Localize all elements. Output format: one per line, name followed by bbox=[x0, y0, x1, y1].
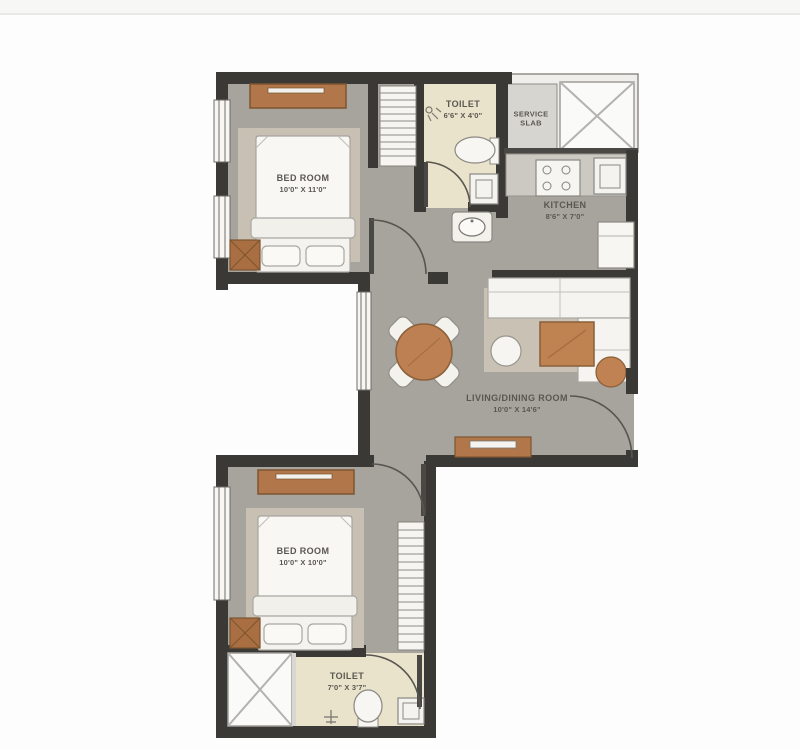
floor-plan-page: BED ROOM 10'0" X 11'0" TOILET 6'6" X 4'0… bbox=[0, 0, 800, 749]
floor-plan-image: BED ROOM 10'0" X 11'0" TOILET 6'6" X 4'0… bbox=[0, 0, 800, 749]
double-bed-icon bbox=[251, 136, 355, 272]
coffee-table-icon bbox=[540, 322, 594, 366]
duct-shaft-icon bbox=[228, 653, 292, 726]
bedside-table-icon bbox=[230, 618, 260, 648]
wc-toilet-icon bbox=[455, 137, 499, 164]
room-name: TOILET bbox=[444, 99, 483, 110]
room-dims: 10'0" X 14'6" bbox=[466, 405, 568, 414]
fridge-icon bbox=[598, 222, 634, 268]
room-name: BED ROOM bbox=[277, 546, 330, 557]
room-name: BED ROOM bbox=[277, 173, 330, 184]
room-dims: 10'0" X 10'0" bbox=[277, 558, 330, 567]
room-name: SLAB bbox=[514, 119, 549, 128]
room-name: TOILET bbox=[328, 671, 367, 682]
kitchen-sink-icon bbox=[470, 174, 498, 204]
window-icon bbox=[214, 196, 230, 258]
tv-unit-icon bbox=[455, 437, 531, 457]
window-icon bbox=[214, 487, 230, 600]
room-dims: 7'0" X 3'7" bbox=[328, 683, 367, 692]
window-icon bbox=[357, 292, 371, 390]
double-bed-icon bbox=[253, 516, 357, 650]
dresser-icon bbox=[250, 84, 346, 108]
room-label-bedroom2: BED ROOM 10'0" X 10'0" bbox=[277, 546, 330, 568]
bedside-table-icon bbox=[230, 240, 260, 270]
duct-shaft-icon bbox=[560, 82, 634, 150]
kitchen-hob-icon bbox=[536, 160, 580, 196]
pouf-icon bbox=[596, 357, 626, 387]
room-name: KITCHEN bbox=[544, 200, 587, 211]
washbasin-icon bbox=[452, 212, 492, 242]
room-dims: 8'6" X 7'0" bbox=[544, 212, 587, 221]
room-label-kitchen: KITCHEN 8'6" X 7'0" bbox=[544, 200, 587, 222]
room-label-service-slab: SERVICE SLAB bbox=[514, 110, 549, 129]
wc-toilet-icon bbox=[354, 690, 382, 727]
wardrobe-shelves-icon bbox=[380, 86, 416, 166]
room-label-bedroom1: BED ROOM 10'0" X 11'0" bbox=[277, 173, 330, 195]
dining-set bbox=[386, 314, 462, 390]
side-table-icon bbox=[491, 336, 521, 366]
room-label-toilet2: TOILET 7'0" X 3'7" bbox=[328, 671, 367, 693]
dresser-icon bbox=[258, 470, 354, 494]
room-name: SERVICE bbox=[514, 110, 549, 119]
room-dims: 10'0" X 11'0" bbox=[277, 185, 330, 194]
kitchen-sink-icon bbox=[594, 158, 626, 194]
room-name: LIVING/DINING ROOM bbox=[466, 393, 568, 404]
wardrobe-shelves-icon bbox=[398, 522, 424, 650]
room-label-living-dining: LIVING/DINING ROOM 10'0" X 14'6" bbox=[466, 393, 568, 415]
floor-plan-svg bbox=[0, 0, 800, 749]
window-icon bbox=[214, 100, 230, 162]
room-label-toilet1: TOILET 6'6" X 4'0" bbox=[444, 99, 483, 121]
toilet2-partition bbox=[292, 653, 296, 726]
room-dims: 6'6" X 4'0" bbox=[444, 111, 483, 120]
